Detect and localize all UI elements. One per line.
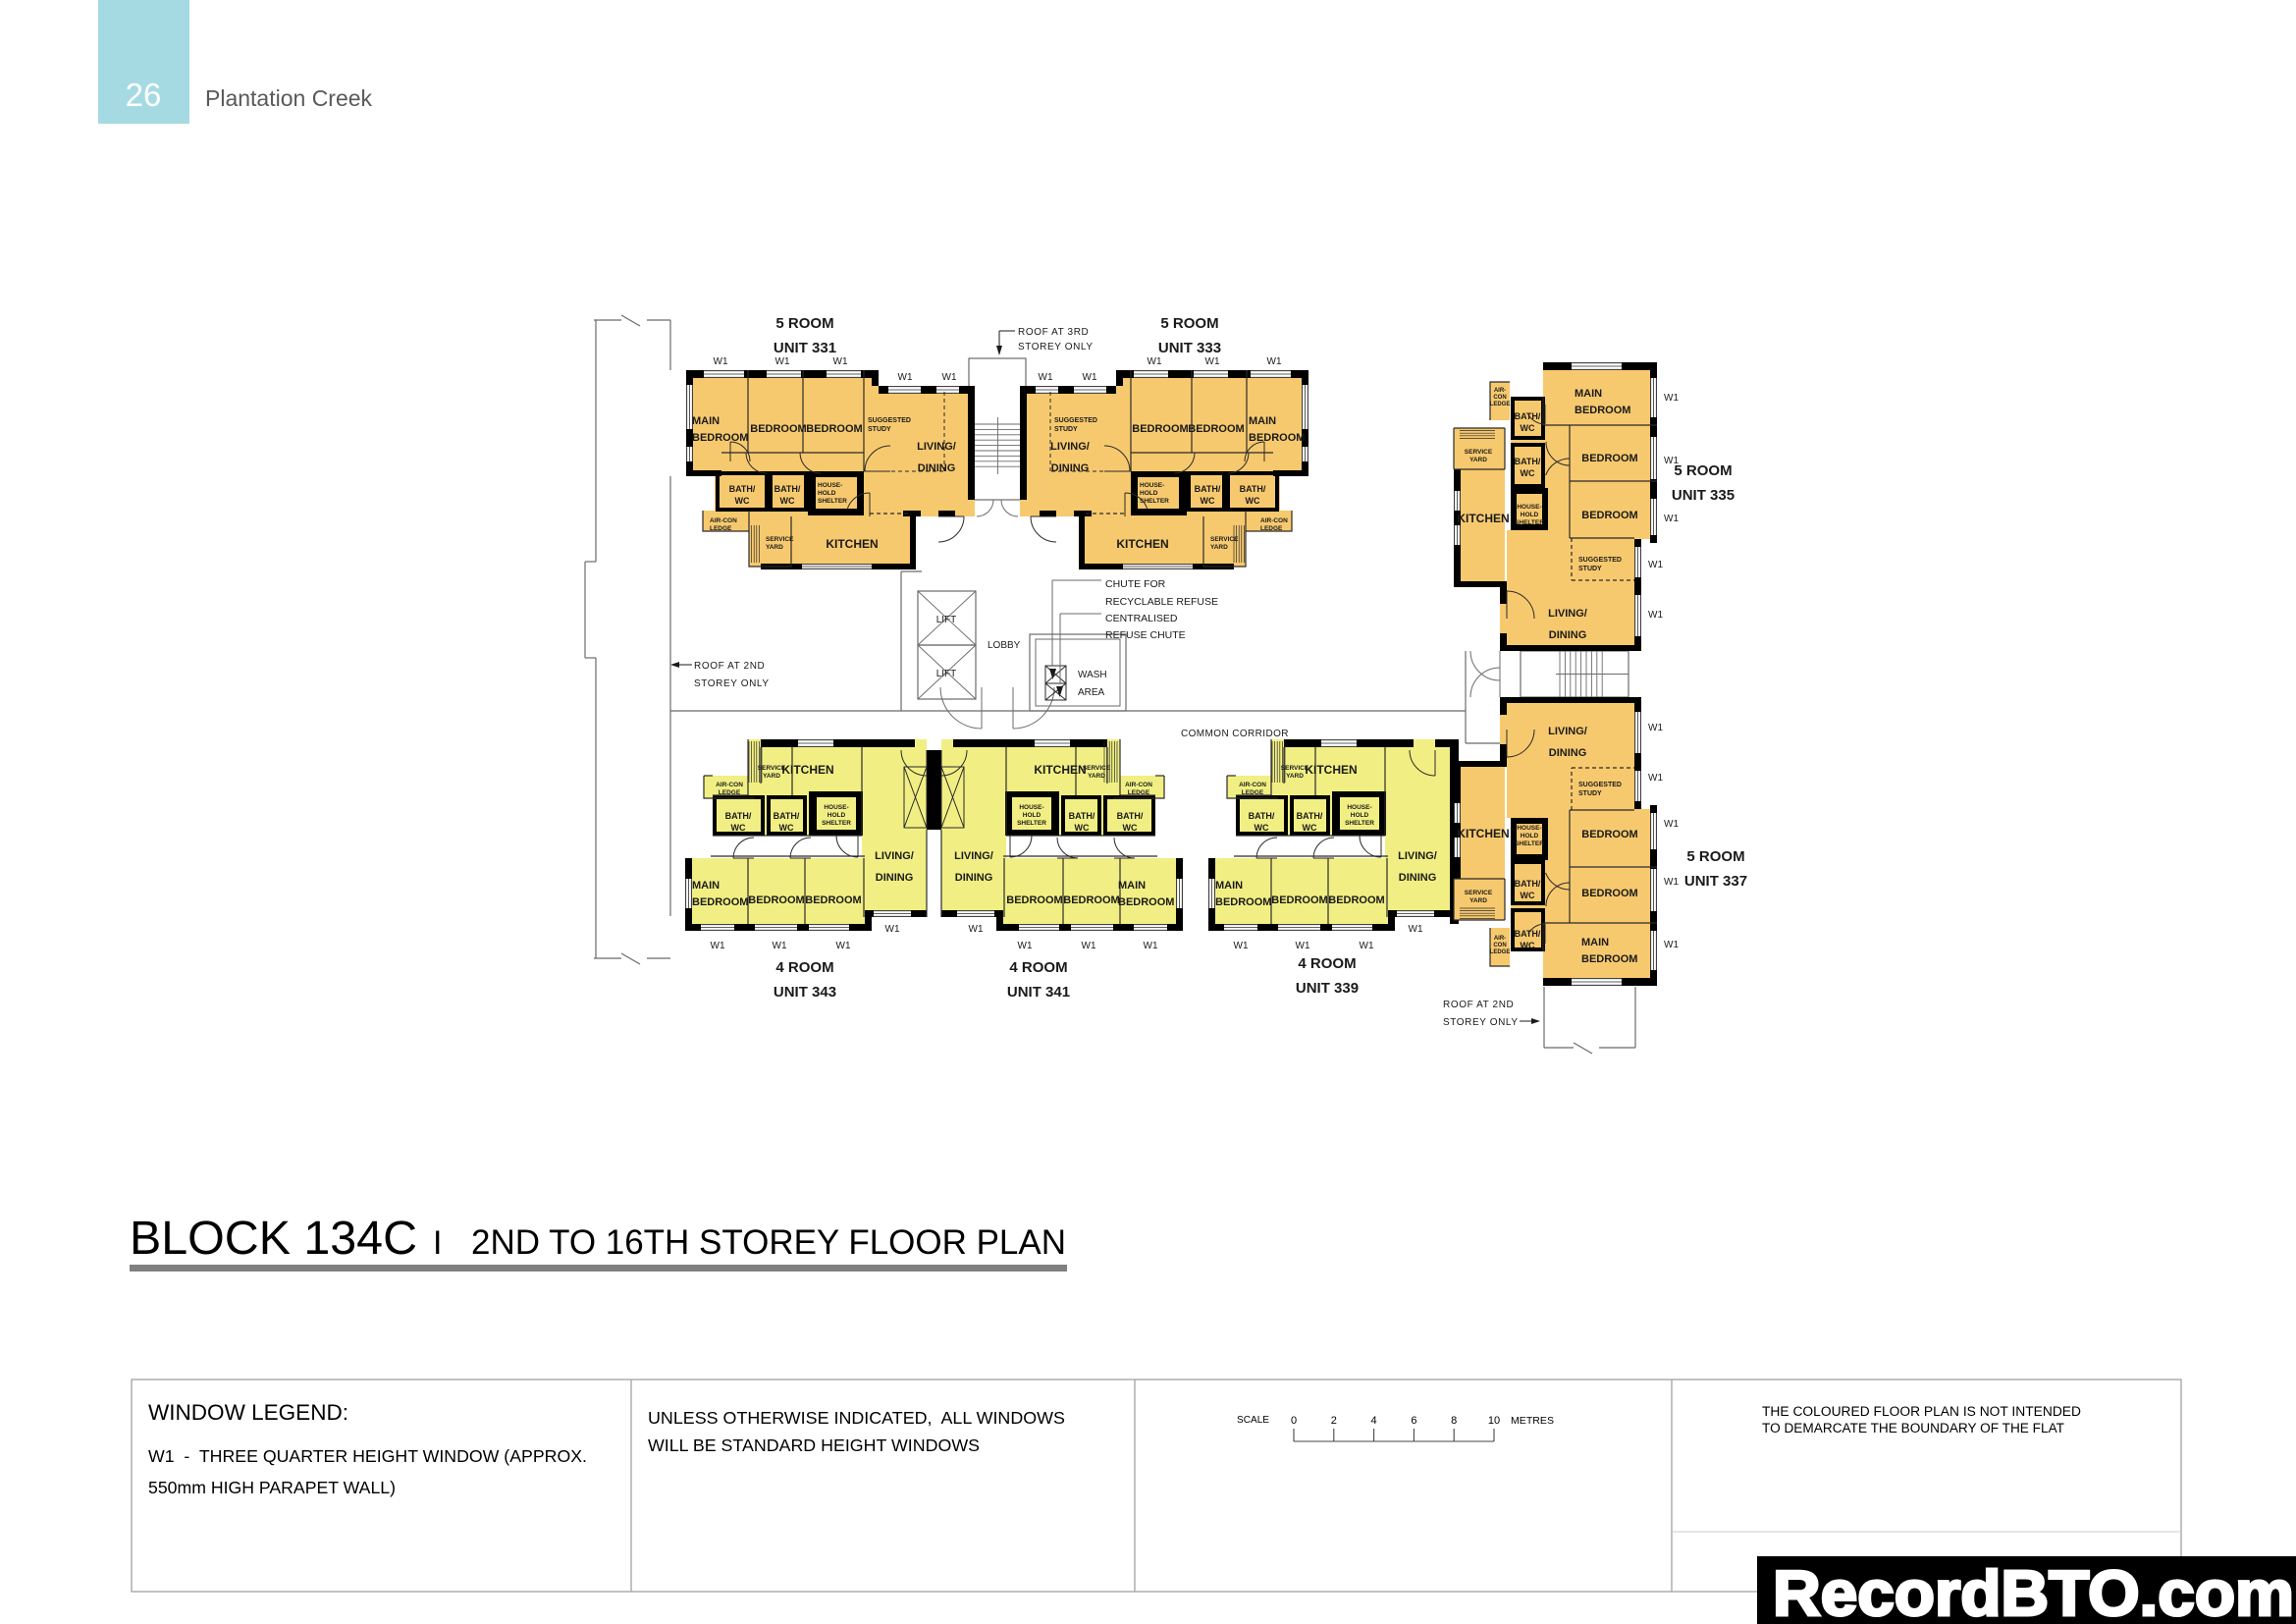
svg-text:HOLD: HOLD bbox=[828, 812, 846, 819]
svg-text:WC: WC bbox=[780, 496, 795, 506]
svg-text:BEDROOM: BEDROOM bbox=[1118, 896, 1174, 908]
svg-text:BATH/: BATH/ bbox=[774, 484, 801, 494]
svg-text:MAIN: MAIN bbox=[1118, 880, 1146, 892]
svg-text:AIR-CON: AIR-CON bbox=[716, 782, 743, 788]
svg-text:W1: W1 bbox=[1648, 610, 1663, 621]
svg-text:4 ROOM: 4 ROOM bbox=[1009, 959, 1067, 976]
svg-text:BATH/: BATH/ bbox=[1515, 411, 1541, 421]
svg-text:BATH/: BATH/ bbox=[1249, 811, 1275, 821]
svg-text:W1: W1 bbox=[1664, 393, 1679, 404]
svg-text:UNIT 333: UNIT 333 bbox=[1158, 340, 1221, 356]
svg-text:BATH/: BATH/ bbox=[1195, 484, 1221, 494]
svg-text:WC: WC bbox=[731, 823, 746, 833]
svg-text:W1: W1 bbox=[714, 356, 728, 367]
svg-text:BATH/: BATH/ bbox=[1240, 484, 1266, 494]
svg-text:W1: W1 bbox=[711, 941, 725, 951]
svg-text:W1: W1 bbox=[1039, 372, 1053, 383]
svg-text:MAIN: MAIN bbox=[1249, 415, 1276, 427]
svg-text:LIVING/: LIVING/ bbox=[917, 441, 956, 453]
svg-text:BATH/: BATH/ bbox=[774, 811, 800, 821]
svg-text:5 ROOM: 5 ROOM bbox=[1160, 315, 1218, 332]
svg-text:BEDROOM: BEDROOM bbox=[805, 894, 861, 906]
svg-text:LIVING/: LIVING/ bbox=[1398, 850, 1437, 862]
svg-text:SUGGESTED: SUGGESTED bbox=[1578, 557, 1622, 564]
svg-text:SUGGESTED: SUGGESTED bbox=[1578, 782, 1622, 788]
svg-text:LEDGE: LEDGE bbox=[710, 525, 732, 532]
svg-text:W1: W1 bbox=[1409, 924, 1423, 935]
svg-text:HOUSE-: HOUSE- bbox=[1140, 482, 1164, 489]
svg-text:WC: WC bbox=[1521, 941, 1535, 950]
svg-text:LIFT: LIFT bbox=[936, 615, 957, 625]
svg-text:AIR-CON: AIR-CON bbox=[1125, 782, 1152, 788]
svg-text:LEDGE: LEDGE bbox=[1490, 949, 1511, 955]
svg-text:W1: W1 bbox=[773, 941, 787, 951]
svg-text:BATH/: BATH/ bbox=[1117, 811, 1144, 821]
svg-text:SCALE: SCALE bbox=[1237, 1414, 1269, 1426]
svg-text:KITCHEN: KITCHEN bbox=[1034, 763, 1086, 777]
svg-text:SERVICE: SERVICE bbox=[1465, 449, 1493, 456]
svg-text:8: 8 bbox=[1451, 1415, 1457, 1427]
svg-text:BEDROOM: BEDROOM bbox=[750, 423, 806, 435]
svg-text:UNIT 331: UNIT 331 bbox=[774, 340, 836, 356]
svg-text:BATH/: BATH/ bbox=[729, 484, 756, 494]
svg-text:LOBBY: LOBBY bbox=[988, 640, 1021, 651]
svg-text:DINING: DINING bbox=[1051, 462, 1090, 474]
svg-text:AREA: AREA bbox=[1078, 687, 1105, 698]
svg-text:6: 6 bbox=[1411, 1415, 1416, 1427]
svg-text:BATH/: BATH/ bbox=[1515, 929, 1541, 939]
svg-text:RECYCLABLE REFUSE: RECYCLABLE REFUSE bbox=[1105, 596, 1218, 608]
svg-text:KITCHEN: KITCHEN bbox=[1457, 512, 1509, 525]
svg-text:W1: W1 bbox=[942, 372, 957, 383]
svg-text:BEDROOM: BEDROOM bbox=[1581, 888, 1637, 899]
svg-text:W1: W1 bbox=[1648, 773, 1663, 784]
svg-text:WINDOW LEGEND:: WINDOW LEGEND: bbox=[148, 1400, 348, 1425]
svg-text:550mm HIGH PARAPET WALL): 550mm HIGH PARAPET WALL) bbox=[148, 1478, 396, 1497]
svg-text:0: 0 bbox=[1291, 1415, 1297, 1427]
svg-text:W1: W1 bbox=[1664, 877, 1679, 888]
svg-text:4: 4 bbox=[1371, 1415, 1377, 1427]
svg-text:STUDY: STUDY bbox=[868, 426, 891, 433]
svg-text:W1: W1 bbox=[885, 924, 900, 935]
svg-text:BEDROOM: BEDROOM bbox=[748, 894, 804, 906]
svg-text:W1: W1 bbox=[1664, 940, 1679, 950]
svg-text:MAIN: MAIN bbox=[1575, 388, 1602, 400]
svg-text:AIR-: AIR- bbox=[1494, 388, 1506, 394]
svg-text:SHELTER: SHELTER bbox=[1515, 840, 1544, 847]
svg-text:BEDROOM: BEDROOM bbox=[1063, 894, 1119, 906]
svg-text:YARD: YARD bbox=[1469, 457, 1487, 463]
svg-text:WASH: WASH bbox=[1078, 670, 1107, 680]
svg-text:W1: W1 bbox=[775, 356, 790, 367]
svg-text:W1: W1 bbox=[1234, 941, 1249, 951]
svg-text:BEDROOM: BEDROOM bbox=[1581, 453, 1637, 464]
svg-text:W1: W1 bbox=[1648, 560, 1663, 570]
svg-text:BEDROOM: BEDROOM bbox=[1215, 896, 1271, 908]
svg-text:W1: W1 bbox=[1360, 941, 1374, 951]
svg-text:UNIT 335: UNIT 335 bbox=[1672, 487, 1735, 504]
svg-text:WC: WC bbox=[1521, 891, 1535, 900]
svg-text:ROOF AT 3RD: ROOF AT 3RD bbox=[1018, 327, 1089, 338]
svg-text:SUGGESTED: SUGGESTED bbox=[868, 417, 911, 424]
svg-text:LIFT: LIFT bbox=[936, 669, 957, 679]
svg-text:TO DEMARCATE THE BOUNDARY OF T: TO DEMARCATE THE BOUNDARY OF THE FLAT bbox=[1762, 1421, 2064, 1435]
svg-text:MAIN: MAIN bbox=[692, 880, 720, 892]
svg-text:DINING: DINING bbox=[1549, 629, 1587, 641]
svg-text:STOREY ONLY: STOREY ONLY bbox=[1443, 1017, 1519, 1028]
svg-text:SERVICE: SERVICE bbox=[1083, 765, 1111, 772]
svg-text:BEDROOM: BEDROOM bbox=[1328, 894, 1384, 906]
svg-text:HOLD: HOLD bbox=[1351, 812, 1369, 819]
svg-text:BEDROOM: BEDROOM bbox=[1271, 894, 1327, 906]
svg-text:BATH/: BATH/ bbox=[1515, 457, 1541, 466]
svg-text:W1: W1 bbox=[898, 372, 913, 383]
svg-text:LEDGE: LEDGE bbox=[1128, 789, 1150, 796]
svg-text:YARD: YARD bbox=[1088, 773, 1105, 780]
svg-text:WC: WC bbox=[1075, 823, 1090, 833]
svg-text:SHELTER: SHELTER bbox=[822, 820, 851, 827]
svg-text:UNIT 339: UNIT 339 bbox=[1296, 980, 1359, 997]
svg-text:THE COLOURED FLOOR PLAN IS NOT: THE COLOURED FLOOR PLAN IS NOT INTENDED bbox=[1762, 1404, 2081, 1419]
svg-text:METRES: METRES bbox=[1511, 1415, 1554, 1427]
svg-text:2ND TO 16TH STOREY FLOOR PLAN: 2ND TO 16TH STOREY FLOOR PLAN bbox=[471, 1223, 1066, 1262]
svg-text:ROOF AT 2ND: ROOF AT 2ND bbox=[1443, 1000, 1514, 1010]
svg-text:DINING: DINING bbox=[876, 872, 914, 884]
svg-text:W1: W1 bbox=[1648, 723, 1663, 733]
svg-text:HOUSE-: HOUSE- bbox=[1517, 504, 1541, 511]
svg-text:SERVICE: SERVICE bbox=[1465, 890, 1493, 896]
svg-text:HOUSE-: HOUSE- bbox=[824, 804, 848, 811]
svg-text:UNLESS OTHERWISE INDICATED, A: UNLESS OTHERWISE INDICATED, ALL WINDOWS bbox=[648, 1408, 1065, 1428]
svg-text:WC: WC bbox=[1521, 468, 1535, 478]
svg-text:MAIN: MAIN bbox=[692, 415, 720, 427]
svg-text:HOLD: HOLD bbox=[1140, 490, 1158, 497]
svg-text:SERVICE: SERVICE bbox=[1210, 536, 1239, 543]
svg-text:LEDGE: LEDGE bbox=[1242, 789, 1264, 796]
svg-text:BEDROOM: BEDROOM bbox=[692, 896, 748, 908]
svg-text:W1: W1 bbox=[1664, 819, 1679, 830]
svg-text:KITCHEN: KITCHEN bbox=[781, 763, 833, 777]
svg-text:ROOF AT 2ND: ROOF AT 2ND bbox=[694, 661, 765, 672]
svg-text:BEDROOM: BEDROOM bbox=[1132, 423, 1188, 435]
svg-text:BEDROOM: BEDROOM bbox=[1188, 423, 1244, 435]
svg-text:BLOCK 134C: BLOCK 134C bbox=[130, 1213, 417, 1265]
svg-text:W1: W1 bbox=[1082, 941, 1096, 951]
svg-text:YARD: YARD bbox=[1469, 897, 1487, 904]
svg-text:UNIT 343: UNIT 343 bbox=[774, 984, 836, 1001]
svg-text:W1: W1 bbox=[1083, 372, 1097, 383]
svg-text:DINING: DINING bbox=[955, 872, 993, 884]
svg-text:COMMON CORRIDOR: COMMON CORRIDOR bbox=[1181, 729, 1289, 739]
svg-text:DINING: DINING bbox=[918, 462, 956, 474]
svg-text:W1: W1 bbox=[836, 941, 851, 951]
svg-text:YARD: YARD bbox=[1210, 544, 1228, 551]
svg-text:W1: W1 bbox=[1018, 941, 1033, 951]
svg-text:W1: W1 bbox=[1267, 356, 1282, 367]
svg-text:AIR-CON: AIR-CON bbox=[1239, 782, 1266, 788]
svg-text:SHELTER: SHELTER bbox=[1345, 820, 1374, 827]
svg-text:26: 26 bbox=[126, 77, 162, 113]
svg-text:BEDROOM: BEDROOM bbox=[1581, 510, 1637, 521]
svg-text:Plantation Creek: Plantation Creek bbox=[205, 85, 373, 111]
svg-text:CON: CON bbox=[1493, 395, 1506, 401]
svg-text:LIVING/: LIVING/ bbox=[1548, 726, 1587, 737]
svg-text:BEDROOM: BEDROOM bbox=[806, 423, 862, 435]
svg-text:STUDY: STUDY bbox=[1578, 566, 1602, 572]
svg-text:W1: W1 bbox=[1205, 356, 1220, 367]
svg-text:CON: CON bbox=[1493, 943, 1506, 948]
svg-text:REFUSE CHUTE: REFUSE CHUTE bbox=[1105, 629, 1186, 641]
svg-text:W1: W1 bbox=[1664, 456, 1679, 466]
svg-text:LEDGE: LEDGE bbox=[1490, 402, 1511, 407]
svg-text:RecordBTO.com: RecordBTO.com bbox=[1773, 1557, 2294, 1624]
svg-text:WC: WC bbox=[1255, 823, 1269, 833]
svg-text:I: I bbox=[433, 1224, 442, 1262]
svg-text:STUDY: STUDY bbox=[1578, 790, 1602, 797]
svg-text:WC: WC bbox=[1303, 823, 1317, 833]
svg-text:WC: WC bbox=[1201, 496, 1215, 506]
svg-text:WC: WC bbox=[779, 823, 794, 833]
svg-text:AIR-CON: AIR-CON bbox=[710, 517, 737, 524]
svg-text:DINING: DINING bbox=[1399, 872, 1437, 884]
svg-text:BEDROOM: BEDROOM bbox=[1006, 894, 1062, 906]
svg-text:HOUSE-: HOUSE- bbox=[818, 482, 842, 489]
svg-text:YARD: YARD bbox=[1286, 773, 1304, 780]
svg-text:CENTRALISED: CENTRALISED bbox=[1105, 613, 1178, 624]
svg-text:W1 - THREE QUARTER HEIGHT WI: W1 - THREE QUARTER HEIGHT WINDOW (APPROX… bbox=[148, 1446, 587, 1466]
svg-text:WC: WC bbox=[1123, 823, 1138, 833]
svg-text:LIVING/: LIVING/ bbox=[1050, 441, 1090, 453]
svg-text:4 ROOM: 4 ROOM bbox=[775, 959, 833, 976]
svg-text:YARD: YARD bbox=[766, 544, 783, 551]
svg-text:WILL BE STANDARD HEIGHT WINDOW: WILL BE STANDARD HEIGHT WINDOWS bbox=[648, 1435, 980, 1455]
svg-text:HOUSE-: HOUSE- bbox=[1517, 825, 1541, 832]
svg-text:HOLD: HOLD bbox=[1521, 512, 1539, 518]
svg-text:BEDROOM: BEDROOM bbox=[1581, 953, 1637, 965]
svg-text:STOREY ONLY: STOREY ONLY bbox=[1018, 342, 1094, 352]
svg-text:UNIT 341: UNIT 341 bbox=[1007, 984, 1070, 1001]
svg-text:KITCHEN: KITCHEN bbox=[1116, 537, 1168, 551]
svg-text:KITCHEN: KITCHEN bbox=[1457, 827, 1509, 840]
svg-text:WC: WC bbox=[735, 496, 750, 506]
svg-text:CHUTE FOR: CHUTE FOR bbox=[1105, 578, 1166, 590]
svg-text:HOLD: HOLD bbox=[1023, 812, 1041, 819]
svg-text:HOUSE-: HOUSE- bbox=[1347, 804, 1371, 811]
svg-text:WC: WC bbox=[1521, 423, 1535, 433]
svg-text:KITCHEN: KITCHEN bbox=[1305, 763, 1357, 777]
svg-text:SHELTER: SHELTER bbox=[1515, 519, 1544, 526]
svg-text:MAIN: MAIN bbox=[1215, 880, 1243, 892]
svg-text:2: 2 bbox=[1331, 1415, 1337, 1427]
svg-text:HOLD: HOLD bbox=[818, 490, 836, 497]
svg-text:W1: W1 bbox=[1664, 514, 1679, 524]
svg-text:W1: W1 bbox=[1144, 941, 1158, 951]
svg-text:10: 10 bbox=[1488, 1415, 1500, 1427]
svg-text:LIVING/: LIVING/ bbox=[954, 850, 993, 862]
svg-text:BATH/: BATH/ bbox=[1515, 879, 1541, 889]
svg-text:4 ROOM: 4 ROOM bbox=[1298, 955, 1356, 972]
svg-text:W1: W1 bbox=[1296, 941, 1310, 951]
svg-text:BATH/: BATH/ bbox=[725, 811, 752, 821]
svg-text:BEDROOM: BEDROOM bbox=[1249, 432, 1305, 444]
svg-text:BEDROOM: BEDROOM bbox=[692, 432, 748, 444]
svg-text:LIVING/: LIVING/ bbox=[1548, 608, 1587, 620]
svg-text:AIR-CON: AIR-CON bbox=[1260, 517, 1288, 524]
svg-text:BEDROOM: BEDROOM bbox=[1581, 829, 1637, 840]
svg-text:BATH/: BATH/ bbox=[1297, 811, 1323, 821]
svg-text:BEDROOM: BEDROOM bbox=[1575, 405, 1630, 416]
svg-text:BATH/: BATH/ bbox=[1069, 811, 1095, 821]
svg-text:WC: WC bbox=[1246, 496, 1260, 506]
svg-text:SHELTER: SHELTER bbox=[818, 498, 847, 505]
svg-text:SHELTER: SHELTER bbox=[1140, 498, 1169, 505]
svg-text:5 ROOM: 5 ROOM bbox=[775, 315, 833, 332]
svg-text:DINING: DINING bbox=[1549, 747, 1587, 759]
svg-text:YARD: YARD bbox=[763, 773, 780, 780]
svg-text:AIR-: AIR- bbox=[1494, 936, 1506, 942]
svg-text:SHELTER: SHELTER bbox=[1017, 820, 1046, 827]
svg-text:LEDGE: LEDGE bbox=[1260, 525, 1283, 532]
svg-text:5 ROOM: 5 ROOM bbox=[1674, 462, 1732, 479]
svg-text:SERVICE: SERVICE bbox=[766, 536, 794, 543]
svg-text:LEDGE: LEDGE bbox=[719, 789, 741, 796]
svg-text:SUGGESTED: SUGGESTED bbox=[1054, 417, 1097, 424]
svg-text:W1: W1 bbox=[833, 356, 848, 367]
svg-text:STOREY ONLY: STOREY ONLY bbox=[694, 678, 770, 689]
svg-text:STUDY: STUDY bbox=[1054, 426, 1078, 433]
svg-text:MAIN: MAIN bbox=[1581, 937, 1609, 948]
svg-text:HOLD: HOLD bbox=[1521, 833, 1539, 839]
svg-text:W1: W1 bbox=[969, 924, 984, 935]
svg-text:W1: W1 bbox=[1148, 356, 1162, 367]
svg-text:KITCHEN: KITCHEN bbox=[826, 537, 878, 551]
svg-text:HOUSE-: HOUSE- bbox=[1019, 804, 1043, 811]
svg-text:UNIT 337: UNIT 337 bbox=[1684, 873, 1747, 890]
svg-text:LIVING/: LIVING/ bbox=[875, 850, 914, 862]
svg-text:5 ROOM: 5 ROOM bbox=[1686, 848, 1744, 865]
